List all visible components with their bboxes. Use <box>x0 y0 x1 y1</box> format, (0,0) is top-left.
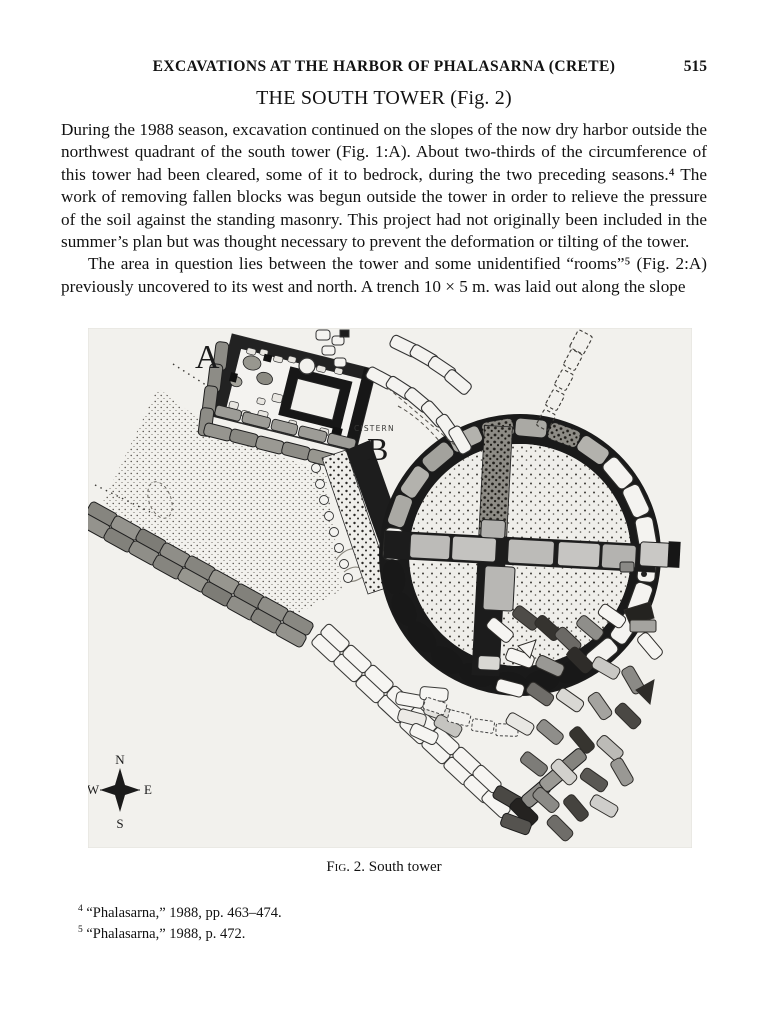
area-label-b: B <box>367 431 388 467</box>
compass-north-label: N <box>115 752 125 767</box>
figure-caption-text: South tower <box>369 859 442 875</box>
paragraph-2: The area in question lies between the to… <box>61 253 707 298</box>
well-circle <box>299 358 315 374</box>
section-title: THE SOUTH TOWER (Fig. 2) <box>0 87 768 110</box>
running-head: EXCAVATIONS AT THE HARBOR OF PHALASARNA … <box>61 58 707 76</box>
figure-caption-number: Fig. 2. <box>326 859 365 875</box>
footnote-5-marker: 5 <box>78 925 83 935</box>
figure-2-site-plan: N S W E A B CISTERN <box>88 328 692 848</box>
site-plan-drawing: N S W E A B CISTERN <box>88 328 692 848</box>
compass-south-label: S <box>116 816 123 831</box>
footnote-4: 4 “Phalasarna,” 1988, pp. 463–474. <box>78 903 282 924</box>
cistern-label: CISTERN <box>354 424 395 433</box>
page-number: 515 <box>684 58 707 76</box>
paragraph-1: During the 1988 season, excavation conti… <box>61 119 707 253</box>
compass-east-label: E <box>144 782 152 797</box>
outlier-stone <box>620 562 634 572</box>
journal-page: { "page": { "running_head": "EXCAVATIONS… <box>0 0 768 1024</box>
compass-west-label: W <box>88 782 100 797</box>
footnote-5: 5 “Phalasarna,” 1988, p. 472. <box>78 924 282 945</box>
footnote-5-text: “Phalasarna,” 1988, p. 472. <box>86 926 245 942</box>
figure-caption: Fig. 2. South tower <box>0 859 768 876</box>
area-label-a: A <box>195 339 220 376</box>
outlier-dot <box>641 571 647 577</box>
footnote-4-marker: 4 <box>78 904 83 914</box>
footnote-4-text: “Phalasarna,” 1988, pp. 463–474. <box>86 905 281 921</box>
footnotes: 4 “Phalasarna,” 1988, pp. 463–474. 5 “Ph… <box>78 903 282 944</box>
body-text: During the 1988 season, excavation conti… <box>61 119 707 298</box>
